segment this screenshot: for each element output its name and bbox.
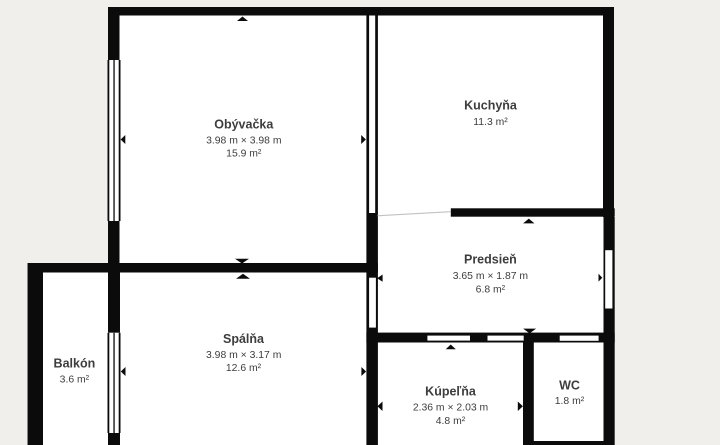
svg-text:WC: WC [559, 379, 580, 393]
svg-text:3.65 m × 1.87 m: 3.65 m × 1.87 m [453, 271, 528, 282]
svg-text:4.8 m²: 4.8 m² [436, 416, 466, 427]
svg-text:15.9 m²: 15.9 m² [226, 148, 262, 159]
svg-text:Kúpeľňa: Kúpeľňa [425, 385, 477, 399]
svg-text:11.3 m²: 11.3 m² [473, 117, 508, 128]
svg-text:3.98 m × 3.17 m: 3.98 m × 3.17 m [206, 350, 281, 361]
svg-text:3.98 m × 3.98 m: 3.98 m × 3.98 m [206, 135, 281, 146]
svg-text:Kuchyňa: Kuchyňa [464, 99, 518, 113]
svg-text:2.36 m × 2.03 m: 2.36 m × 2.03 m [413, 403, 488, 414]
svg-text:Obývačka: Obývačka [214, 118, 274, 132]
svg-text:3.6 m²: 3.6 m² [60, 374, 90, 385]
svg-text:Predsieň: Predsieň [464, 252, 517, 266]
svg-text:12.6 m²: 12.6 m² [226, 363, 262, 374]
svg-text:Spálňa: Spálňa [223, 332, 265, 346]
svg-text:Balkón: Balkón [54, 356, 96, 370]
svg-text:6.8 m²: 6.8 m² [476, 285, 506, 296]
svg-text:1.8 m²: 1.8 m² [555, 396, 585, 407]
